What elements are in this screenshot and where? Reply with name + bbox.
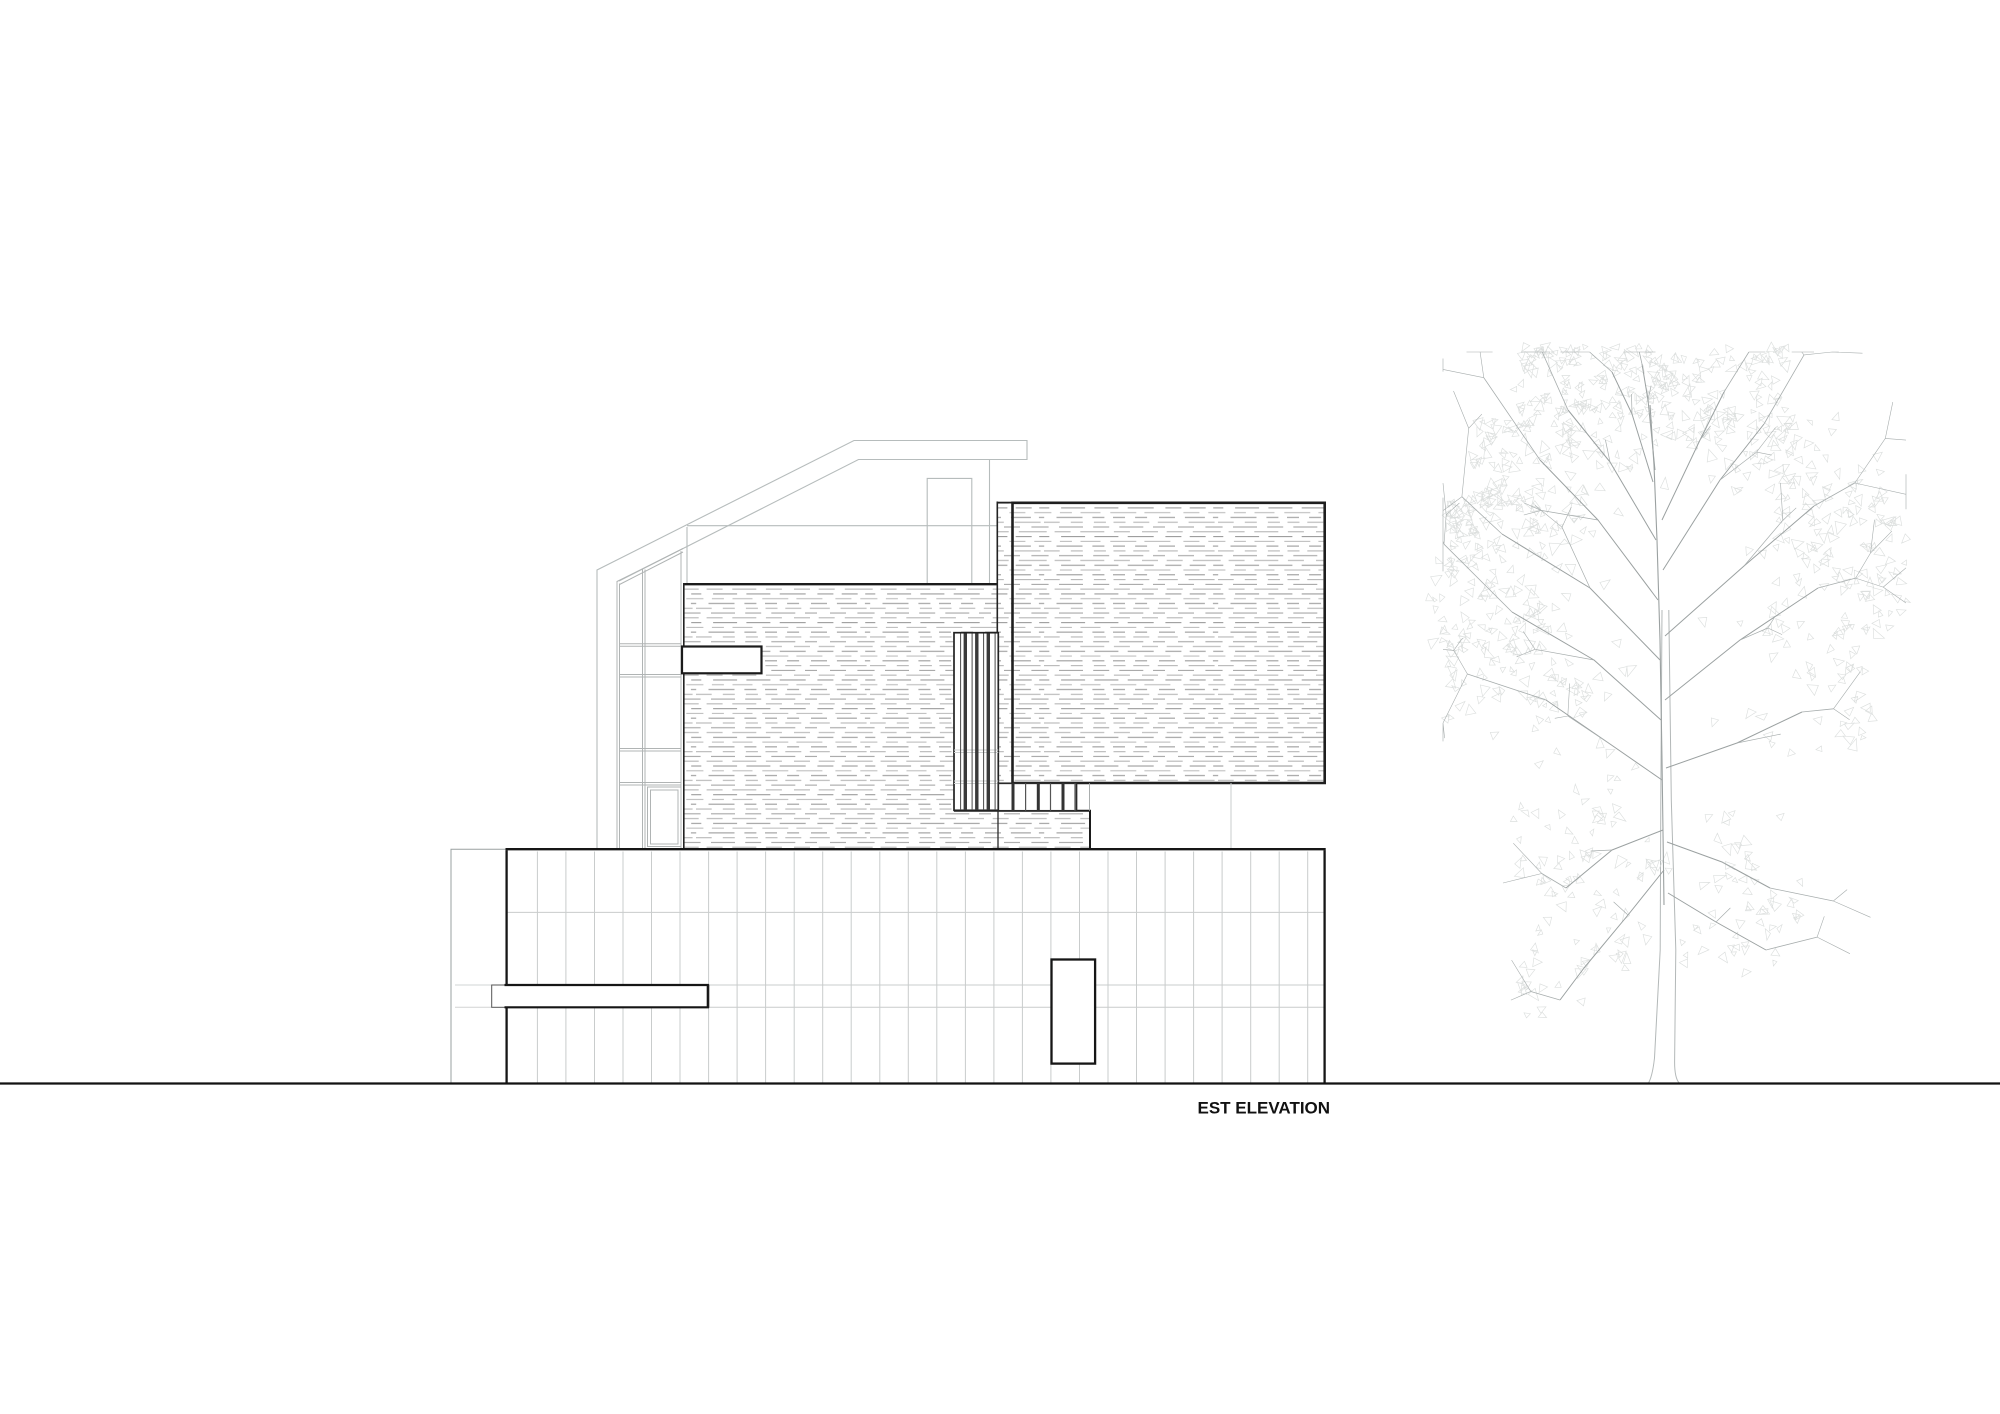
svg-text:EST ELEVATION: EST ELEVATION (1198, 1099, 1331, 1118)
